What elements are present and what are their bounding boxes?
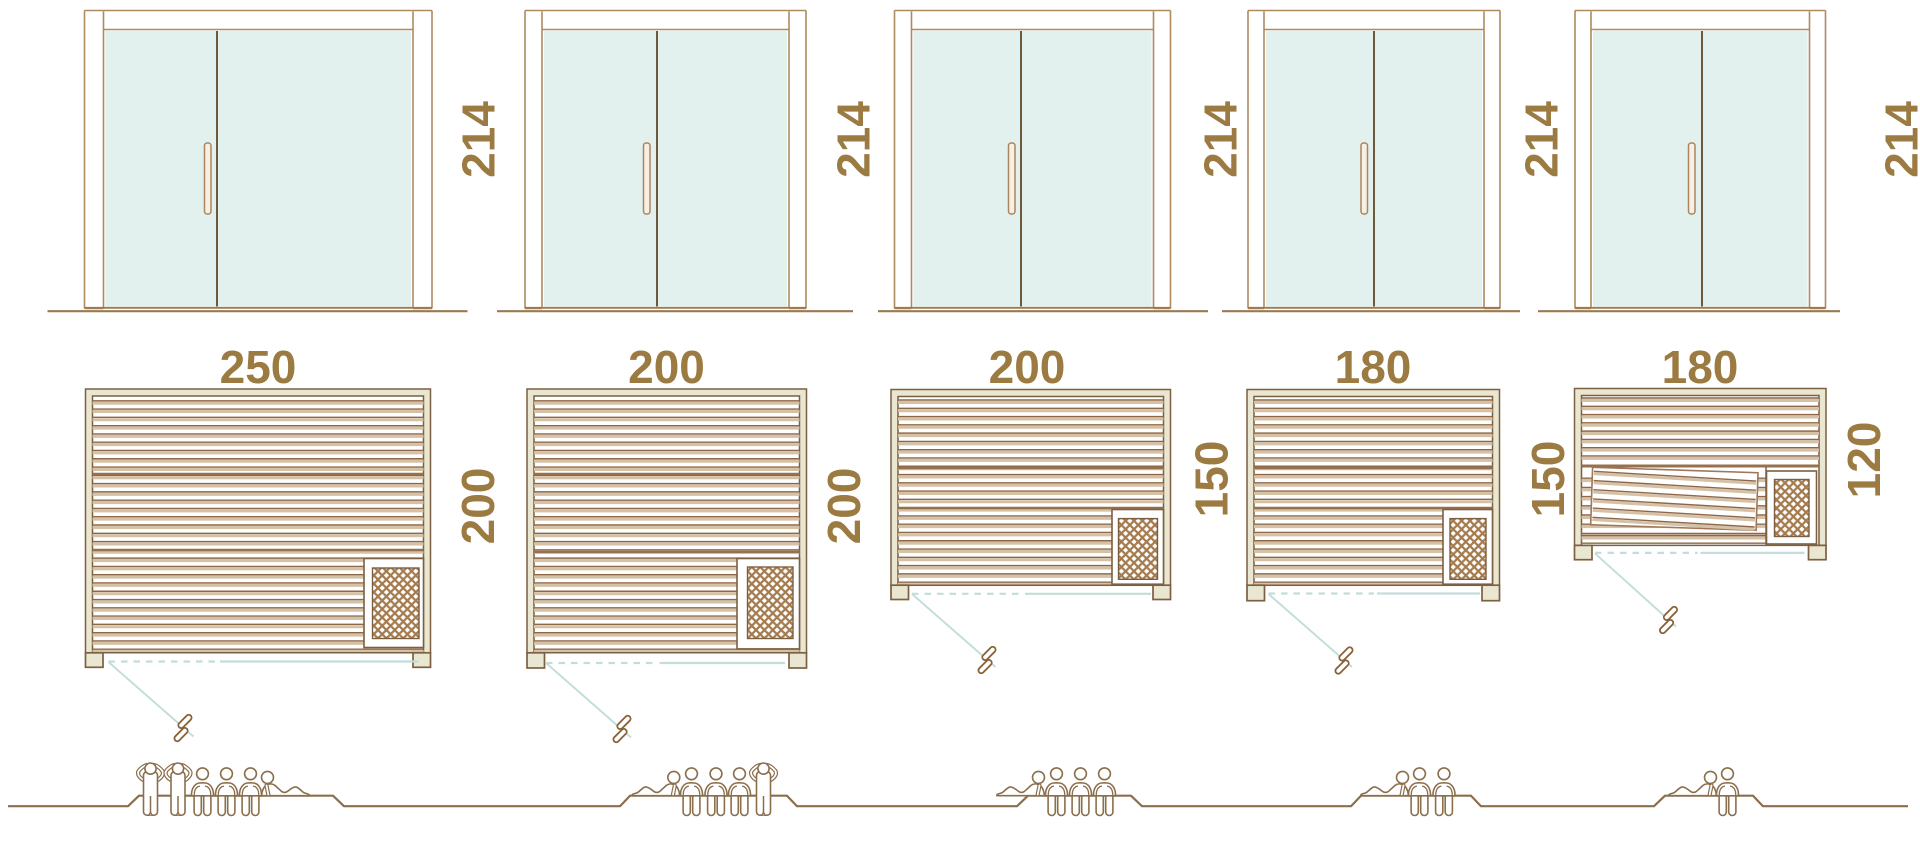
svg-text:150: 150 bbox=[1186, 441, 1238, 518]
svg-text:180: 180 bbox=[1335, 341, 1412, 393]
svg-text:200: 200 bbox=[628, 341, 705, 393]
svg-text:214: 214 bbox=[828, 101, 880, 178]
svg-text:214: 214 bbox=[453, 101, 505, 178]
svg-text:120: 120 bbox=[1838, 422, 1890, 499]
svg-text:214: 214 bbox=[1876, 101, 1920, 178]
svg-text:250: 250 bbox=[220, 341, 297, 393]
svg-text:200: 200 bbox=[452, 468, 504, 545]
svg-text:200: 200 bbox=[818, 468, 870, 545]
svg-text:214: 214 bbox=[1516, 101, 1568, 178]
svg-text:200: 200 bbox=[989, 341, 1066, 393]
svg-text:214: 214 bbox=[1195, 101, 1247, 178]
svg-text:180: 180 bbox=[1662, 341, 1739, 393]
svg-text:150: 150 bbox=[1522, 441, 1574, 518]
